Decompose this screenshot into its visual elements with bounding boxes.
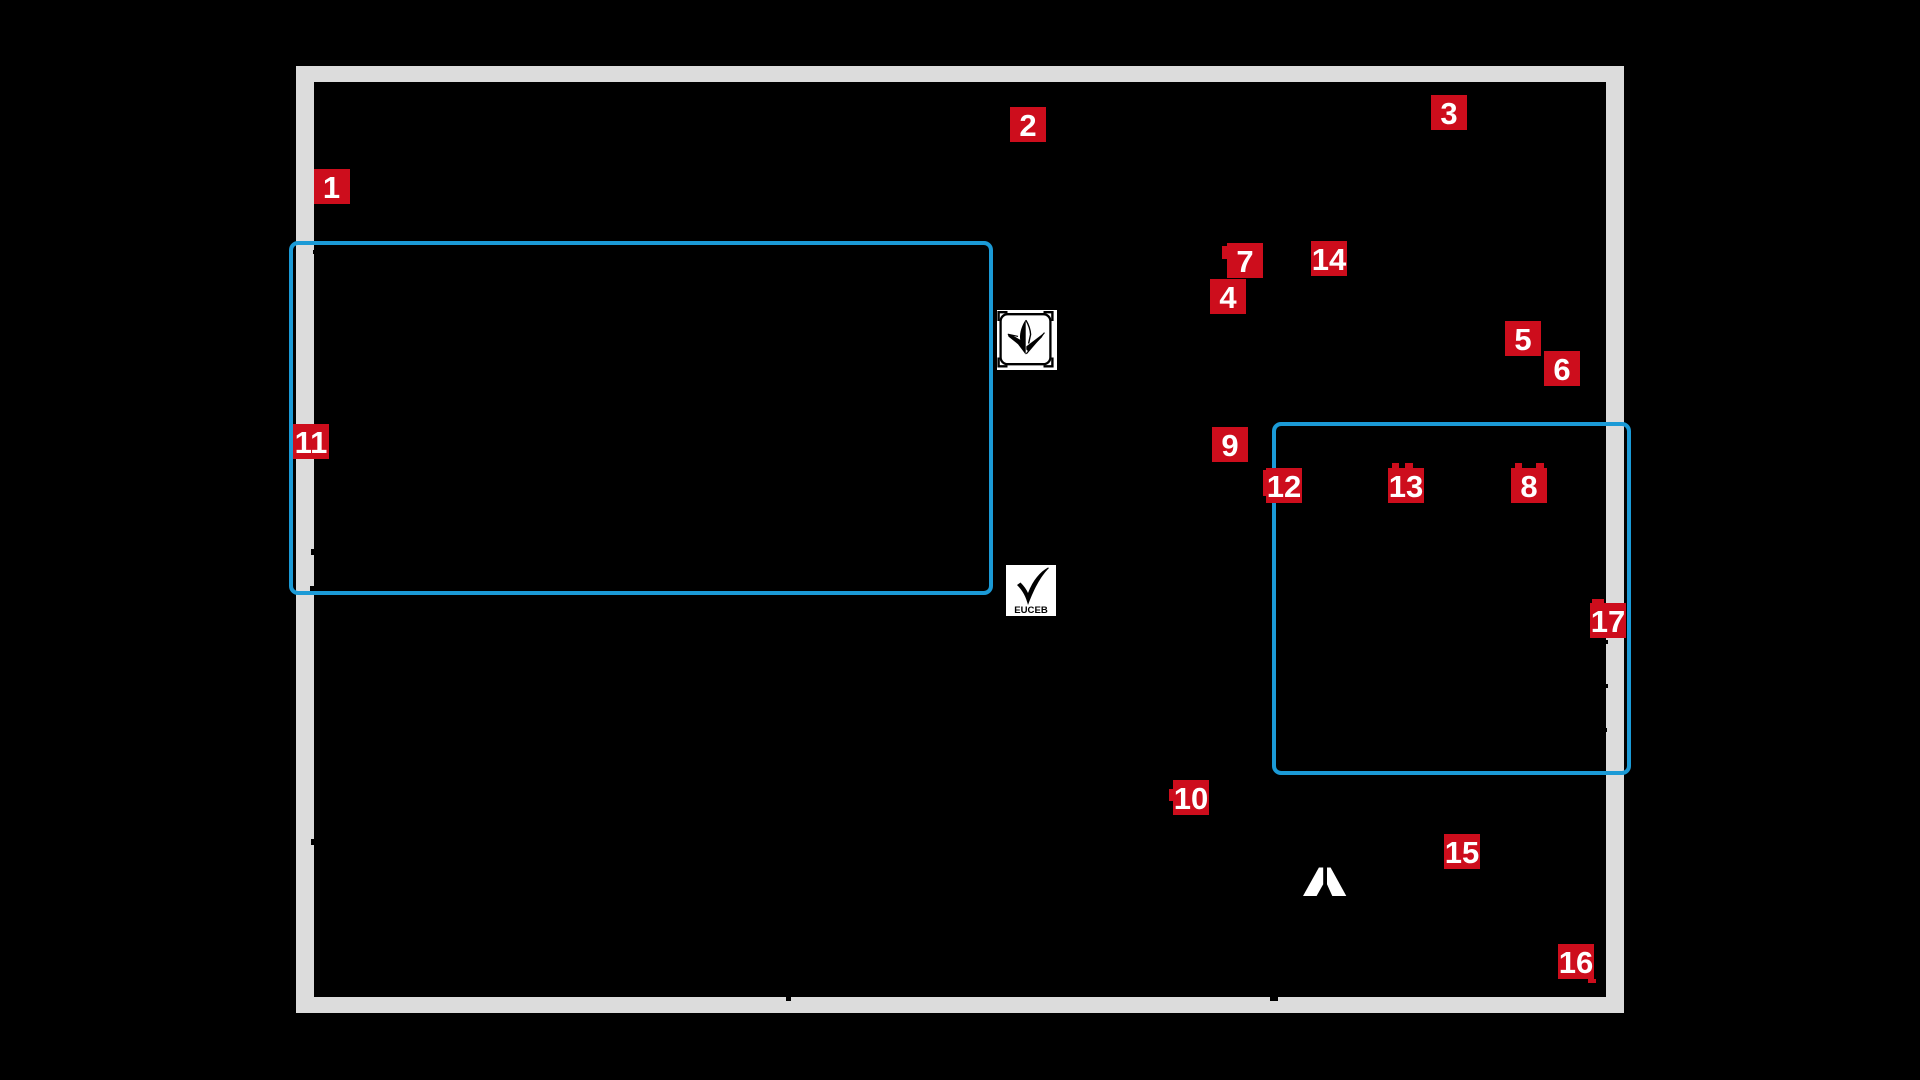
svg-text:EUCEB: EUCEB: [1014, 605, 1048, 615]
